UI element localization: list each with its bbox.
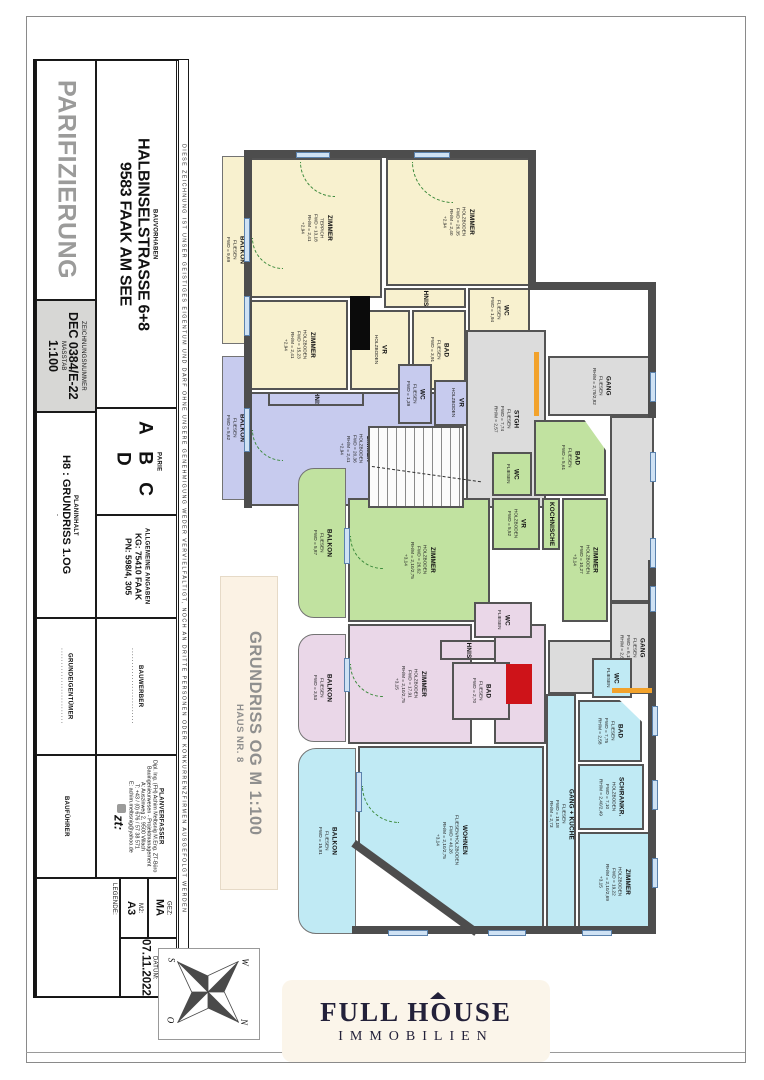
room-t12-zimmer: ZIMMERHOLZBODENFWD = 19,22RH/M = 2,10/2,… bbox=[578, 832, 650, 932]
window bbox=[244, 296, 250, 336]
room-label-line: FLIESEN bbox=[477, 678, 483, 703]
room-label-line: ZIMMER bbox=[590, 545, 598, 574]
room-label-line: BAD bbox=[483, 678, 491, 703]
room-label: WCFLIESEN bbox=[605, 668, 620, 688]
room-label-line: FWD = 19,22 bbox=[610, 864, 616, 901]
room-label-line: FLIESEN bbox=[495, 297, 501, 322]
window bbox=[356, 772, 362, 812]
room-label-line: BALKON bbox=[324, 674, 332, 702]
room-label-line: FWD = 20,36 bbox=[351, 434, 357, 463]
compass-north-label: N bbox=[239, 1019, 249, 1025]
room-label-line: FWD = 7,74 bbox=[499, 406, 505, 432]
room-label: ZIMMERHOLZBODENFWD = 26,35RH/M = 2,40+2,… bbox=[441, 207, 475, 236]
wall-segment bbox=[244, 150, 536, 158]
room-label-line: RH/M = 2,10/2,69 bbox=[604, 864, 610, 901]
room-label-line: KOCHNISCHE bbox=[464, 640, 472, 660]
window bbox=[652, 780, 658, 810]
room-label-line: SCHRANKR. bbox=[616, 777, 624, 817]
room-label-line: +2,94 bbox=[282, 330, 288, 359]
room-label: WCFLIESENFWD = 1,39 bbox=[405, 381, 426, 406]
room-label-line: HOLZBODEN bbox=[301, 330, 307, 359]
room-label-line: ZIMMER bbox=[419, 666, 427, 703]
logo-line-1: FULL HOUSE bbox=[320, 997, 512, 1028]
room-label-line: FWD = 18,18 bbox=[554, 789, 560, 840]
room-label-line: GANG bbox=[637, 635, 645, 661]
room-label-line: +3,15 bbox=[597, 864, 603, 901]
wall-segment bbox=[530, 282, 656, 290]
room-t08-wc: WCFLIESENFWD = 1,94 bbox=[468, 288, 530, 332]
room-label-line: +3,14 bbox=[571, 545, 577, 574]
stair-diagonal bbox=[372, 466, 481, 482]
room-label-line: FWD = 2,70 bbox=[471, 678, 477, 703]
room-label-line: +2,94 bbox=[338, 434, 344, 463]
wall-segment bbox=[528, 150, 536, 290]
room-label-line: RH/M = 2,41 bbox=[289, 330, 295, 359]
room-label-line: HOLZBODEN bbox=[421, 542, 427, 579]
room-label-line: FWD = 10,27 bbox=[578, 545, 584, 574]
window bbox=[652, 706, 658, 736]
room-t12-bad: BADFLIESENFWD = 7,75RH/M = 2,58 bbox=[578, 700, 642, 762]
room-label-line: FWD = 3,53 bbox=[312, 674, 318, 702]
room-label-line: WOHNEN bbox=[460, 815, 468, 865]
room-label: KOCHNISCHE bbox=[421, 288, 429, 308]
room-t08-kochnische: KOCHNISCHE bbox=[384, 288, 466, 308]
room-label-line: FLIESEN bbox=[597, 368, 603, 405]
room-label-line: RH/M = 2,79/2,82 bbox=[591, 368, 597, 405]
room-label-line: VR bbox=[379, 335, 387, 364]
room-t12-wohnen: WOHNENFLIESEN/HOLZBODENFWD = 40,26RH/M =… bbox=[358, 746, 544, 934]
room-label: BALKONFLIESENFWD = 5,87 bbox=[312, 529, 333, 557]
room-label-line: WC bbox=[502, 610, 510, 630]
room-label-line: RH/M = 2,58 bbox=[596, 718, 602, 744]
room-label-line: FLIESEN bbox=[505, 406, 511, 432]
room-label-line: FWD = 15,81 bbox=[317, 827, 323, 855]
room-t12-balkon: BALKONFLIESENFWD = 15,81 bbox=[298, 748, 356, 934]
room-label-line: STGH bbox=[511, 406, 519, 432]
room-label-line: +3,15 bbox=[393, 666, 399, 703]
room-t11-bad: BADFLIESENFWD = 2,70 bbox=[452, 662, 510, 720]
room-label: BALKONFLIESENFWD = 3,53 bbox=[312, 674, 333, 702]
room-label-line: +2,94 bbox=[441, 207, 447, 236]
compass-east-label: O bbox=[165, 1017, 175, 1024]
window bbox=[244, 218, 250, 262]
logo-line-2: IMMOBILIEN bbox=[338, 1029, 494, 1045]
window bbox=[388, 930, 428, 936]
room-t10-zimmer2: ZIMMERHOLZBODENFWD = 10,27+3,14 bbox=[562, 498, 608, 622]
window bbox=[652, 858, 658, 888]
window bbox=[244, 408, 250, 452]
room-label-line: HOLZBODEN bbox=[450, 388, 456, 417]
room-t12-gang-kueche: GANG + KÜCHEFLIESENFWD = 18,18RH/M = 2,7… bbox=[546, 694, 576, 934]
room-label-line: FWD = 26,35 bbox=[454, 207, 460, 236]
room-label-line: KOCHNISCHE bbox=[312, 392, 320, 406]
wall-segment bbox=[648, 560, 656, 696]
room-label: BADFLIESENFWD = 3,91 bbox=[429, 337, 450, 362]
window bbox=[488, 930, 526, 936]
room-label-line: FWD = 17,91 bbox=[406, 666, 412, 703]
room-label-line: FLIESEN bbox=[609, 718, 615, 744]
room-label: GANG + KÜCHEFLIESENFWD = 18,18RH/M = 2,7… bbox=[547, 789, 574, 840]
room-label: GANGFLIESENRH/M = 2,79/2,82 bbox=[591, 368, 612, 405]
room-gang-oben: GANGFLIESENRH/M = 2,79/2,82 bbox=[548, 356, 654, 416]
window bbox=[344, 528, 350, 564]
room-label: BALKONFLIESENFWD = 15,81 bbox=[317, 827, 338, 855]
room-label-line: ZIMMER bbox=[623, 864, 631, 901]
plan-subtitle: HAUS NR. 8 bbox=[234, 631, 245, 835]
window bbox=[650, 538, 656, 568]
room-label: BALKONFLIESENFWD = 9,69 bbox=[225, 236, 246, 264]
room-label-line: FWD = 5,52 bbox=[506, 509, 512, 538]
room-label-line: FWD = 5,61 bbox=[560, 445, 566, 470]
room-label: BADFLIESENFWD = 2,70 bbox=[471, 678, 492, 703]
room-t11-wc: WCFLIESEN bbox=[474, 602, 532, 638]
window bbox=[296, 152, 330, 158]
room-label-line: +3,14 bbox=[402, 542, 408, 579]
status-mark bbox=[612, 688, 652, 693]
room-label-line: FLIESEN bbox=[496, 610, 502, 630]
room-label-line: GANG bbox=[603, 368, 611, 405]
room-label: VRHOLZBODEN bbox=[373, 335, 388, 364]
room-label: ZIMMERHOLZBODENFWD = 19,22RH/M = 2,10/2,… bbox=[597, 864, 631, 901]
company-logo: FULL HOUSE IMMOBILIEN bbox=[282, 980, 550, 1062]
room-label-line: +3,14 bbox=[434, 815, 440, 865]
room-label-line: WC bbox=[417, 381, 425, 406]
room-label-line: FLIESEN bbox=[411, 381, 417, 406]
room-label-line: RH/M = 2,57 bbox=[492, 406, 498, 432]
room-label: ZIMMERHOLZBODENFWD = 26,62RH/M = 2,10/2,… bbox=[402, 542, 436, 579]
room-label-line: FWD = 3,91 bbox=[429, 337, 435, 362]
room-t10-bad: BADFLIESENFWD = 5,61 bbox=[534, 420, 606, 496]
room-t10-wc: WCFLIESEN bbox=[492, 452, 532, 496]
room-label-line: FLIESEN bbox=[566, 445, 572, 470]
room-label-line: BAD bbox=[615, 718, 623, 744]
room-label-line: RH/M = 2,40 bbox=[448, 207, 454, 236]
room-label: BADFLIESENFWD = 7,75RH/M = 2,58 bbox=[596, 718, 623, 744]
room-t09-kochnische: KOCHNISCHE bbox=[268, 392, 364, 406]
room-label: WOHNENFLIESEN/HOLZBODENFWD = 40,26RH/M =… bbox=[434, 815, 468, 865]
room-label-line: FLIESEN/HOLZBODEN bbox=[453, 815, 459, 865]
compass-west-label: W bbox=[240, 958, 250, 966]
room-label-line: FWD = 13,18 bbox=[312, 214, 318, 242]
room-label: WCFLIESEN bbox=[505, 464, 520, 484]
status-mark bbox=[506, 664, 532, 704]
room-label-line: WC bbox=[501, 297, 509, 322]
room-label-line: FWD = 7,75 bbox=[603, 718, 609, 744]
floor-plan: BALKONFLIESENFWD = 9,69ZIMMERTEPPICHFWD … bbox=[0, 0, 764, 1080]
window bbox=[582, 930, 612, 936]
room-label: KOCHNISCHE bbox=[312, 392, 320, 406]
room-label-line: RH/M = 2,10/2,75 bbox=[441, 815, 447, 865]
room-label-line: HOLZBODEN bbox=[610, 777, 616, 817]
room-label-line: RH/M = 2,10/2,75 bbox=[409, 542, 415, 579]
room-label-line: HOLZBODEN bbox=[373, 335, 379, 364]
room-label-line: KOCHNISCHE bbox=[421, 288, 429, 308]
room-label: ZIMMERHOLZBODENFWD = 15,23RH/M = 2,41+2,… bbox=[282, 330, 316, 359]
room-t08-zimmer-gross: ZIMMERHOLZBODENFWD = 26,35RH/M = 2,40+2,… bbox=[386, 158, 530, 286]
room-t11-kochnische: KOCHNISCHE bbox=[440, 640, 496, 660]
plan-title: GRUNDRISS OG M 1:100 bbox=[245, 631, 264, 835]
room-label: WCFLIESEN bbox=[496, 610, 511, 630]
window bbox=[414, 152, 450, 158]
room-label-line: TEPPICH bbox=[318, 214, 324, 242]
house-roof-icon bbox=[430, 992, 446, 999]
room-t10-vr: VRHOLZBODENFWD = 5,52 bbox=[492, 498, 540, 550]
room-label-line: RH/M = 2,73 bbox=[547, 789, 553, 840]
room-t10-balkon: BALKONFLIESENFWD = 5,87 bbox=[298, 468, 346, 618]
room-label: ZIMMERHOLZBODENFWD = 17,91RH/M = 2,10/2,… bbox=[393, 666, 427, 703]
room-label-line: RH/M = 2,40/2,49 bbox=[597, 777, 603, 817]
unit-badge-top08 bbox=[350, 296, 370, 350]
room-label: VRHOLZBODENFWD = 5,52 bbox=[506, 509, 527, 538]
room-label-line: ZIMMER bbox=[325, 214, 333, 242]
status-mark bbox=[534, 352, 539, 416]
room-label-line: HOLZBODEN bbox=[460, 207, 466, 236]
room-label-line: FWD = 1,94 bbox=[489, 297, 495, 322]
compass-rose: S W O N bbox=[158, 948, 260, 1040]
room-t12-schrankraum: SCHRANKR.HOLZBODENFWD = 7,10RH/M = 2,40/… bbox=[578, 764, 644, 830]
room-label-line: BALKON bbox=[324, 529, 332, 557]
window bbox=[650, 452, 656, 482]
plan-title-box: GRUNDRISS OG M 1:100 HAUS NR. 8 bbox=[220, 576, 278, 890]
room-label-line: HOLZBODEN bbox=[512, 509, 518, 538]
room-t11-balkon: BALKONFLIESENFWD = 3,53 bbox=[298, 634, 346, 742]
room-label: KOCHNISCHE bbox=[464, 640, 472, 660]
window bbox=[650, 586, 656, 612]
room-t08-zimmer-holz: ZIMMERHOLZBODENFWD = 15,23RH/M = 2,41+2,… bbox=[250, 300, 348, 390]
room-label-line: RH/M = 2,10/2,75 bbox=[400, 666, 406, 703]
room-label-line: KOCHNISCHE bbox=[547, 502, 555, 546]
room-t10-kochnische: KOCHNISCHE bbox=[542, 498, 560, 550]
room-label-line: WC bbox=[511, 464, 519, 484]
room-label-line: FWD = 26,62 bbox=[415, 542, 421, 579]
room-label: ZIMMERHOLZBODENFWD = 10,27+3,14 bbox=[571, 545, 598, 574]
room-label: BALKONFLIESENFWD = 5,62 bbox=[225, 414, 246, 442]
room-label-line: BAD bbox=[572, 445, 580, 470]
room-label-line: GANG + KÜCHE bbox=[566, 789, 574, 840]
room-label-line: HOLZBODEN bbox=[412, 666, 418, 703]
room-label: BADFLIESENFWD = 5,61 bbox=[560, 445, 581, 470]
room-t09-wc: WCFLIESENFWD = 1,39 bbox=[398, 364, 432, 424]
room-label-line: HOLZBODEN bbox=[357, 434, 363, 463]
room-label-line: +2,94 bbox=[299, 214, 305, 242]
room-label-line: FWD = 9,69 bbox=[225, 236, 231, 264]
room-label-line: ZIMMER bbox=[308, 330, 316, 359]
room-label: ZIMMERHOLZBODENFWD = 20,36RH/M = 2,41+2,… bbox=[338, 434, 372, 463]
room-label-line: FLIESEN bbox=[631, 635, 637, 661]
room-label: SCHRANKR.HOLZBODENFWD = 7,10RH/M = 2,40/… bbox=[597, 777, 624, 817]
room-label-line: VR bbox=[518, 509, 526, 538]
room-label-line: FLIESEN bbox=[505, 464, 511, 484]
room-label-line: RH/M = 2,41 bbox=[345, 434, 351, 463]
room-label-line: ZIMMER bbox=[428, 542, 436, 579]
room-label: KOCHNISCHE bbox=[547, 502, 555, 546]
room-label-line: HOLZBODEN bbox=[616, 864, 622, 901]
room-label-line: HOLZBODEN bbox=[584, 545, 590, 574]
room-label-line: FWD = 1,39 bbox=[405, 381, 411, 406]
room-label-line: WC bbox=[611, 668, 619, 688]
room-label-line: FWD = 15,23 bbox=[295, 330, 301, 359]
compass-south-label: S bbox=[166, 958, 176, 963]
room-label-line: BAD bbox=[441, 337, 449, 362]
room-label-line: FLIESEN bbox=[435, 337, 441, 362]
room-label-line: FWD = 5,87 bbox=[312, 529, 318, 557]
room-label-line: FLIESEN bbox=[605, 668, 611, 688]
room-label-line: VR bbox=[456, 388, 464, 417]
room-label: STGHFLIESENFWD = 7,74RH/M = 2,57 bbox=[492, 406, 519, 432]
room-label-line: BALKON bbox=[329, 827, 337, 855]
room-label-line: ZIMMER bbox=[467, 207, 475, 236]
room-label: WCFLIESENFWD = 1,94 bbox=[489, 297, 510, 322]
window bbox=[650, 372, 656, 402]
room-label-line: RH/M = 2,41 bbox=[306, 214, 312, 242]
staircase bbox=[368, 426, 464, 508]
room-label-line: FWD = 5,62 bbox=[225, 414, 231, 442]
room-label: ZIMMERTEPPICHFWD = 13,18RH/M = 2,41+2,94 bbox=[299, 214, 333, 242]
room-label: VRHOLZBODEN bbox=[450, 388, 465, 417]
